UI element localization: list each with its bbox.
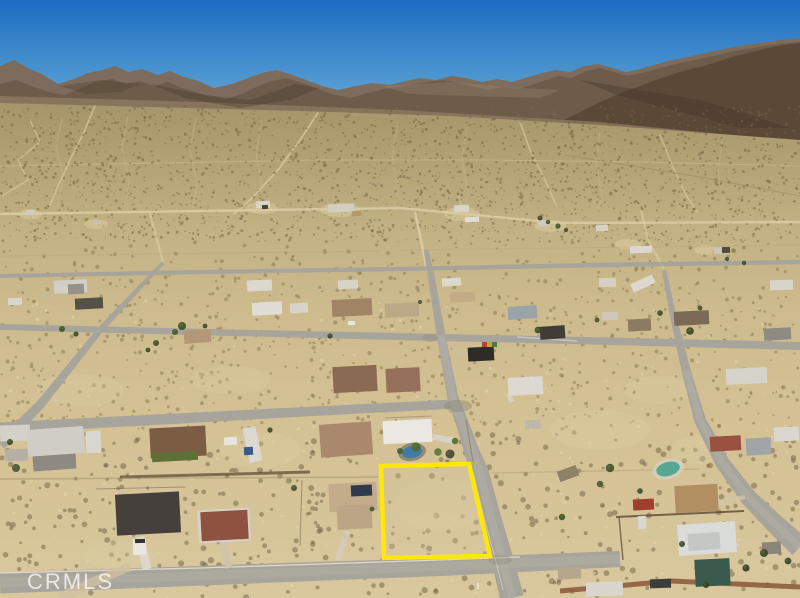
aerial-photo: CRMLS	[0, 0, 800, 598]
highlighted-lot-boundary	[381, 464, 490, 558]
aerial-photo-canvas	[0, 0, 800, 598]
